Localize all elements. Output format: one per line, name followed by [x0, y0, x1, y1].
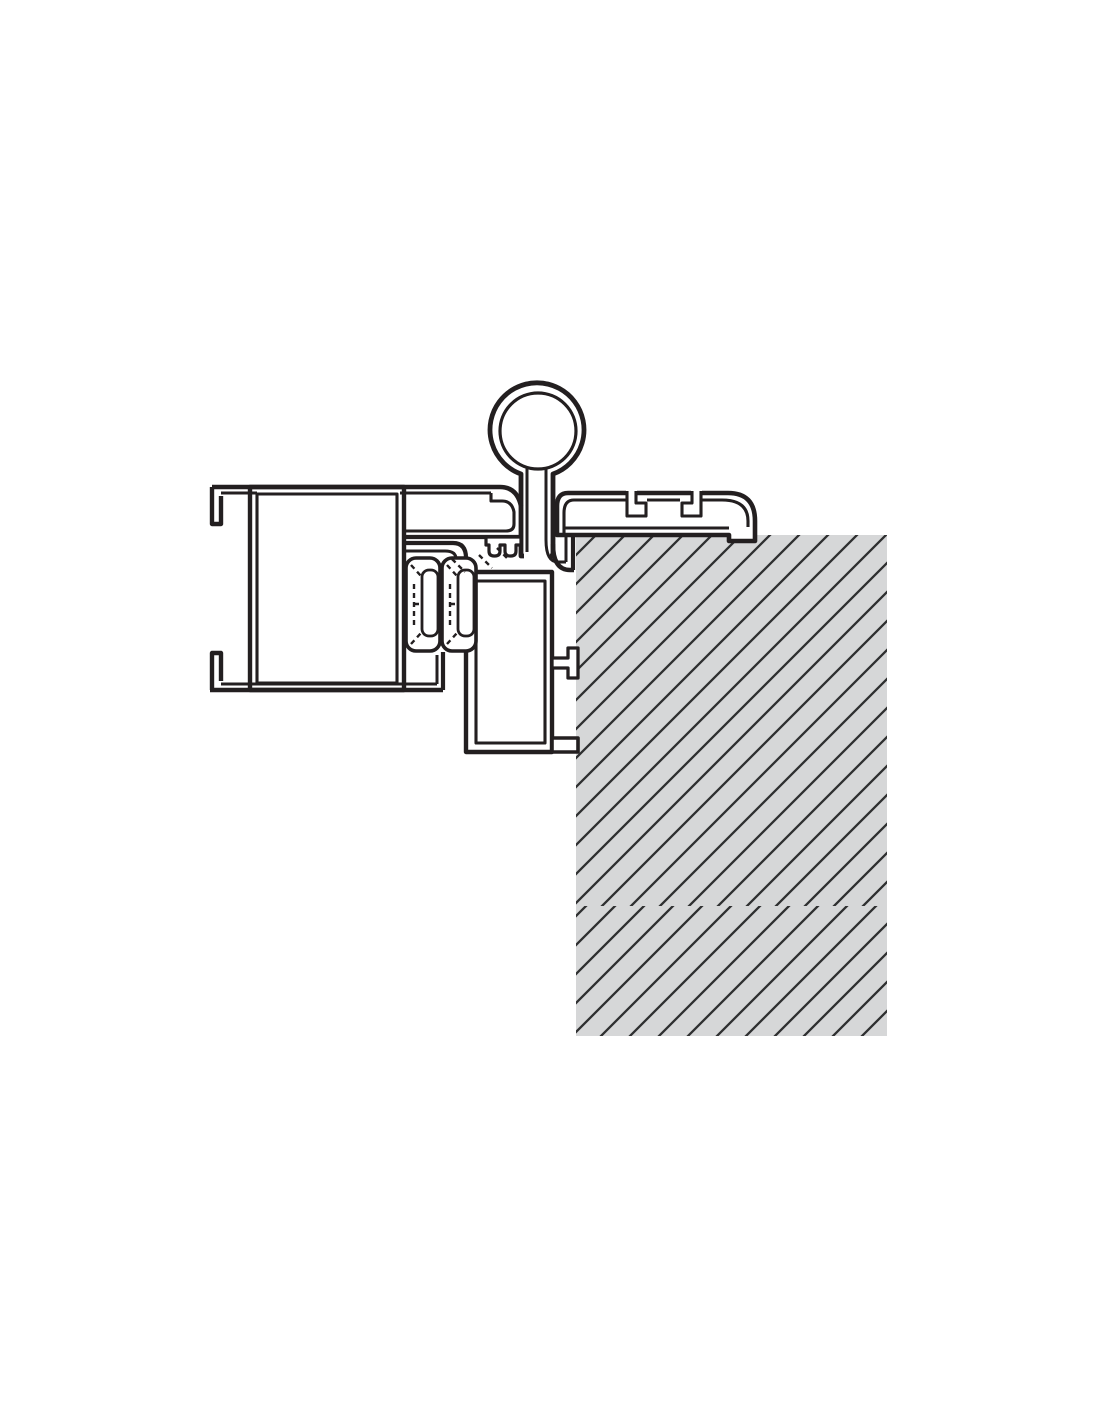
leaf-chamber: [404, 493, 514, 531]
frame-hook-bottom: [212, 653, 221, 690]
stem-foot-outer: [553, 544, 574, 570]
gasket-block: [486, 537, 521, 556]
gasket-2-inner: [458, 570, 474, 636]
anchor-foot: [552, 738, 578, 752]
hinge-ring-inner: [500, 393, 576, 469]
frame-section-drawing-page: [0, 0, 1100, 1422]
wall-section: [576, 535, 887, 1036]
wall-hatch-upper-lines: [576, 535, 887, 906]
gasket-1-inner: [422, 570, 438, 636]
jamb-box-inner: [476, 581, 545, 743]
wall-hatch-lower-lines: [576, 906, 887, 1036]
frame-hook-top: [212, 487, 221, 524]
anchor-tab: [552, 648, 578, 678]
frame-cell-inner: [257, 494, 397, 683]
technical-section-drawing: [0, 0, 1100, 1422]
